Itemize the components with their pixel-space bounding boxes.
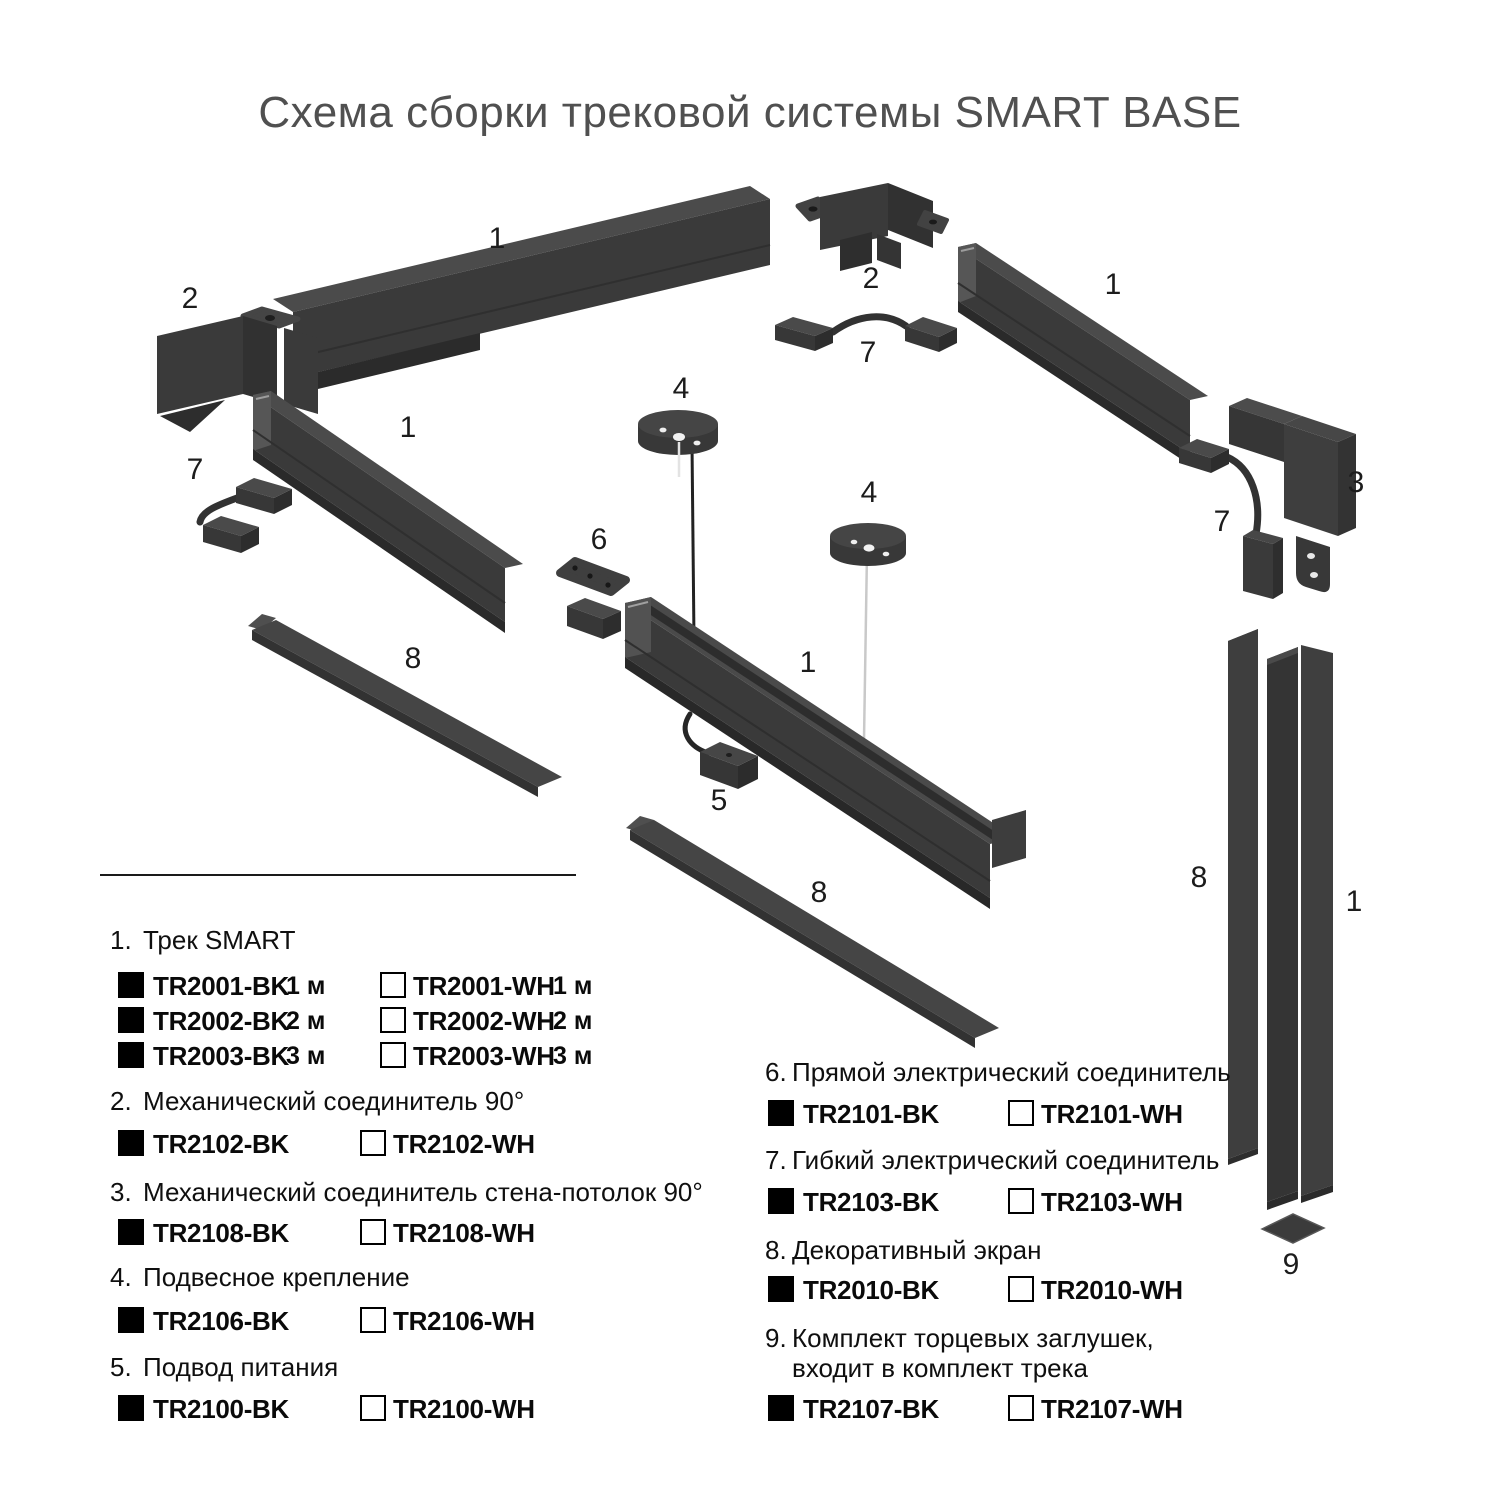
- section-number: 2.: [110, 1086, 132, 1116]
- legend-section-screen: 8.Декоративный экран: [765, 1235, 787, 1265]
- black-swatch: [118, 972, 144, 998]
- black-swatch: [768, 1188, 794, 1214]
- pendant-canopy-right: [830, 523, 906, 566]
- legend-section-straight-connector: 6.Прямой электрический соединитель: [765, 1057, 787, 1087]
- white-swatch: [360, 1219, 386, 1245]
- section-number: 3.: [110, 1177, 132, 1207]
- white-swatch: [360, 1130, 386, 1156]
- legend-divider: [100, 874, 576, 876]
- straight-connector: [560, 561, 626, 639]
- section-number: 5.: [110, 1352, 132, 1382]
- legend-section-suspension: 4.Подвесное крепление: [110, 1262, 132, 1292]
- part-label-power-feed: 5: [711, 784, 728, 817]
- legend-section-flex-connector: 7.Гибкий электрический соединитель: [765, 1145, 787, 1175]
- part-label-connector-straight: 6: [591, 523, 608, 556]
- decorative-screen-vertical: [1228, 629, 1258, 1165]
- black-swatch: [118, 1307, 144, 1333]
- section-number: 6.: [765, 1057, 787, 1087]
- white-swatch: [360, 1395, 386, 1421]
- section-title-line2: входит в комплект трека: [792, 1353, 1088, 1383]
- white-swatch: [1008, 1188, 1034, 1214]
- section-title: Гибкий электрический соединитель: [792, 1145, 1219, 1175]
- part-label-track-right: 1: [1105, 268, 1122, 301]
- black-swatch: [118, 1007, 144, 1033]
- black-swatch: [768, 1395, 794, 1421]
- part-label-flex-right: 7: [1214, 505, 1231, 538]
- part-code-black: TR2001-BK: [153, 972, 289, 1000]
- legend-row: TR2001-BK 1 м TR2001-WH 1 м: [118, 972, 638, 1000]
- white-swatch: [1008, 1276, 1034, 1302]
- part-code-white: TR2102-WH: [393, 1130, 535, 1158]
- black-swatch: [118, 1130, 144, 1156]
- part-label-end-cap: 9: [1283, 1248, 1300, 1281]
- part-code-black: TR2108-BK: [153, 1219, 289, 1247]
- part-length: 2 м: [553, 1007, 592, 1035]
- part-length: 1 м: [286, 972, 325, 1000]
- part-label-screen-center: 8: [811, 876, 828, 909]
- black-swatch: [768, 1100, 794, 1126]
- part-code-white: TR2108-WH: [393, 1219, 535, 1247]
- part-code-black: TR2002-BK: [153, 1007, 289, 1035]
- part-label-screen-left: 8: [405, 642, 422, 675]
- part-length: 3 м: [286, 1042, 325, 1070]
- section-title: Механический соединитель стена-потолок 9…: [143, 1177, 703, 1207]
- black-swatch: [768, 1276, 794, 1302]
- section-title: Прямой электрический соединитель: [792, 1057, 1231, 1087]
- part-code-white: TR2010-WH: [1041, 1276, 1183, 1304]
- legend-row: TR2106-BK TR2106-WH: [118, 1307, 638, 1335]
- legend-row: TR2002-BK 2 м TR2002-WH 2 м: [118, 1007, 638, 1035]
- section-title: Механический соединитель 90°: [143, 1086, 524, 1116]
- part-code-white: TR2107-WH: [1041, 1395, 1183, 1423]
- part-label-canopy-right: 4: [861, 476, 878, 509]
- section-title: Подвесное крепление: [143, 1262, 410, 1292]
- section-title: Комплект торцевых заглушек,: [792, 1323, 1154, 1353]
- pendant-wire-light: [864, 552, 867, 740]
- section-number: 4.: [110, 1262, 132, 1292]
- track-end-cap-plate: [992, 810, 1026, 868]
- legend-section-power: 5.Подвод питания: [110, 1352, 132, 1382]
- part-label-corner-left: 2: [182, 282, 199, 315]
- track-vertical: [1267, 645, 1333, 1210]
- legend-row: TR2102-BK TR2102-WH: [118, 1130, 638, 1158]
- legend-section-end-caps: 9.Комплект торцевых заглушек, входит в к…: [765, 1323, 787, 1353]
- black-swatch: [118, 1042, 144, 1068]
- part-code-white: TR2103-WH: [1041, 1188, 1183, 1216]
- flexible-connector-right: [1179, 439, 1283, 599]
- part-label-track-vertical: 1: [1346, 885, 1363, 918]
- section-title: Декоративный экран: [792, 1235, 1042, 1265]
- legend-row: TR2101-BK TR2101-WH: [768, 1100, 1248, 1128]
- part-label-flex-top: 7: [860, 336, 877, 369]
- white-swatch: [380, 972, 406, 998]
- black-swatch: [118, 1219, 144, 1245]
- legend-row: TR2103-BK TR2103-WH: [768, 1188, 1248, 1216]
- section-number: 9.: [765, 1323, 787, 1353]
- white-swatch: [1008, 1395, 1034, 1421]
- legend-section-corner90: 2.Механический соединитель 90°: [110, 1086, 132, 1116]
- part-length: 2 м: [286, 1007, 325, 1035]
- legend-row: TR2100-BK TR2100-WH: [118, 1395, 638, 1423]
- track-top-left: [273, 186, 770, 395]
- white-swatch: [380, 1007, 406, 1033]
- part-code-black: TR2010-BK: [803, 1276, 939, 1304]
- part-code-black: TR2107-BK: [803, 1395, 939, 1423]
- pendant-wire-dark: [692, 444, 694, 640]
- part-code-black: TR2101-BK: [803, 1100, 939, 1128]
- part-label-flex-left: 7: [187, 453, 204, 486]
- part-code-white: TR2002-WH: [413, 1007, 555, 1035]
- part-label-track-center: 1: [800, 646, 817, 679]
- legend-row: TR2003-BK 3 м TR2003-WH 3 м: [118, 1042, 638, 1070]
- part-label-screen-vertical: 8: [1191, 861, 1208, 894]
- end-cap: [1262, 1214, 1324, 1243]
- part-code-black: TR2106-BK: [153, 1307, 289, 1335]
- part-label-wall-connector: 3: [1348, 466, 1365, 499]
- part-length: 3 м: [553, 1042, 592, 1070]
- part-length: 1 м: [553, 972, 592, 1000]
- assembly-scheme-page: Схема сборки трековой системы SMART BASE: [0, 0, 1500, 1500]
- black-swatch: [118, 1395, 144, 1421]
- part-label-corner-top: 2: [863, 262, 880, 295]
- section-number: 8.: [765, 1235, 787, 1265]
- part-code-black: TR2102-BK: [153, 1130, 289, 1158]
- track-mid-left: [253, 391, 523, 633]
- legend-row: TR2010-BK TR2010-WH: [768, 1276, 1248, 1304]
- section-number: 1.: [110, 925, 132, 955]
- part-code-black: TR2003-BK: [153, 1042, 289, 1070]
- section-title: Подвод питания: [143, 1352, 338, 1382]
- corner-connector-top: [798, 183, 947, 271]
- white-swatch: [360, 1307, 386, 1333]
- part-code-white: TR2100-WH: [393, 1395, 535, 1423]
- part-label-track-mid-left: 1: [400, 411, 417, 444]
- part-code-white: TR2101-WH: [1041, 1100, 1183, 1128]
- section-header: 1. Трек SMART: [110, 925, 132, 955]
- part-code-black: TR2100-BK: [153, 1395, 289, 1423]
- legend-row: TR2107-BK TR2107-WH: [768, 1395, 1248, 1423]
- section-number: 7.: [765, 1145, 787, 1175]
- legend-section-track: 1. Трек SMART: [110, 925, 132, 955]
- white-swatch: [380, 1042, 406, 1068]
- part-label-canopy-left: 4: [673, 372, 690, 405]
- part-code-white: TR2106-WH: [393, 1307, 535, 1335]
- legend-row: TR2108-BK TR2108-WH: [118, 1219, 638, 1247]
- white-swatch: [1008, 1100, 1034, 1126]
- track-right: [958, 243, 1208, 465]
- legend-section-wall-ceiling: 3.Механический соединитель стена-потолок…: [110, 1177, 132, 1207]
- part-code-white: TR2001-WH: [413, 972, 555, 1000]
- part-code-white: TR2003-WH: [413, 1042, 555, 1070]
- section-title: Трек SMART: [143, 925, 295, 955]
- part-label-track-top-left: 1: [489, 222, 506, 255]
- part-code-black: TR2103-BK: [803, 1188, 939, 1216]
- flexible-connector-left: [200, 478, 292, 553]
